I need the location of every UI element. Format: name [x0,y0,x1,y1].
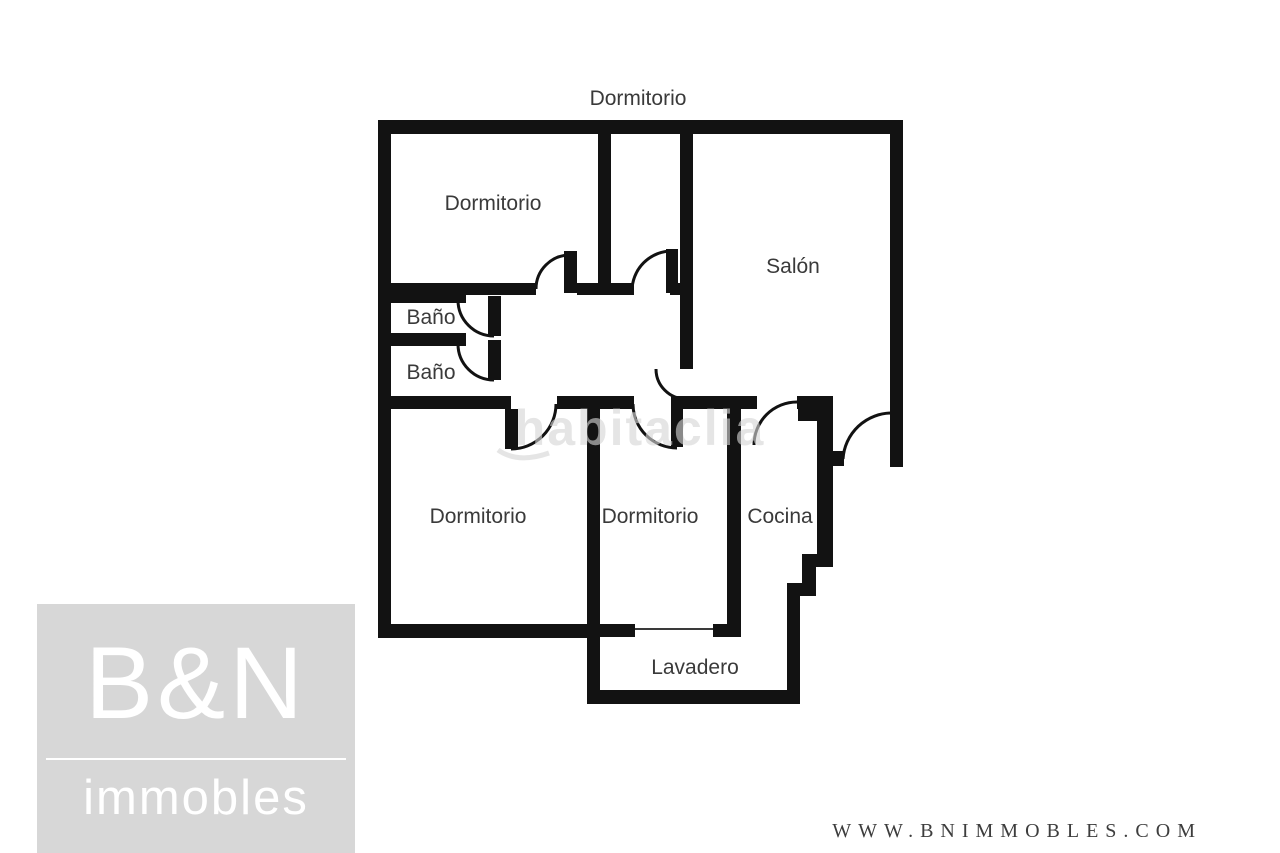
agency-website-url: WWW.BNIMMOBLES.COM [832,820,1202,843]
door-leaf-topleft-bedroom [564,251,577,293]
label-top-bedroom: Dormitorio [590,87,687,110]
wall-topleft-bedroom-bottom-b [577,283,634,295]
door-leaf-bath1 [488,296,501,336]
agency-logo: B&N immobles [37,604,355,853]
room-labels: Dormitorio Dormitorio Salón Baño Baño Do… [406,87,819,679]
wall-kitchen-door-nub [798,409,817,421]
label-bottomleft-bedroom: Dormitorio [430,505,527,528]
wall-outer-top [378,120,903,134]
wall-middle-bedroom-bottom-a [600,624,635,637]
wall-outer-left [378,120,391,638]
floorplan-page: habitaclia Dormitorio Dormitorio Salón B… [0,0,1280,853]
door-leaf-bath2 [488,340,501,380]
label-bath1: Baño [406,306,455,329]
label-bath2: Baño [406,361,455,384]
wall-laundry-bottom [587,690,800,704]
wall-bottomleft-bottom [378,624,600,638]
window-middle-bedroom [635,628,713,630]
wall-bath1-top [378,290,466,303]
door-leaf-entry [827,451,844,466]
agency-logo-name: B&N [37,632,355,734]
door-arc-salon [656,369,686,399]
label-laundry: Lavadero [651,656,739,679]
label-salon: Salón [766,255,820,278]
wall-outer-right [890,120,903,467]
label-bottommiddle-bedroom: Dormitorio [602,505,699,528]
wall-hall-bottom-a [378,396,511,409]
label-kitchen: Cocina [747,505,813,528]
wall-middle-bedroom-bottom-b [713,624,741,637]
agency-logo-subtitle: immobles [37,772,355,824]
door-hinge-top-bedroom [670,283,680,295]
wall-salon-left [680,132,693,369]
wall-kitchen-right [817,396,833,567]
watermark: habitaclia [498,400,765,458]
wall-corridor-left [598,132,611,283]
wall-bath-separator [378,333,466,346]
label-topleft-bedroom: Dormitorio [445,192,542,215]
door-arc-entry [843,413,892,459]
wall-laundry-right [787,583,800,704]
watermark-text: habitaclia [515,400,766,456]
agency-logo-divider [46,758,346,760]
